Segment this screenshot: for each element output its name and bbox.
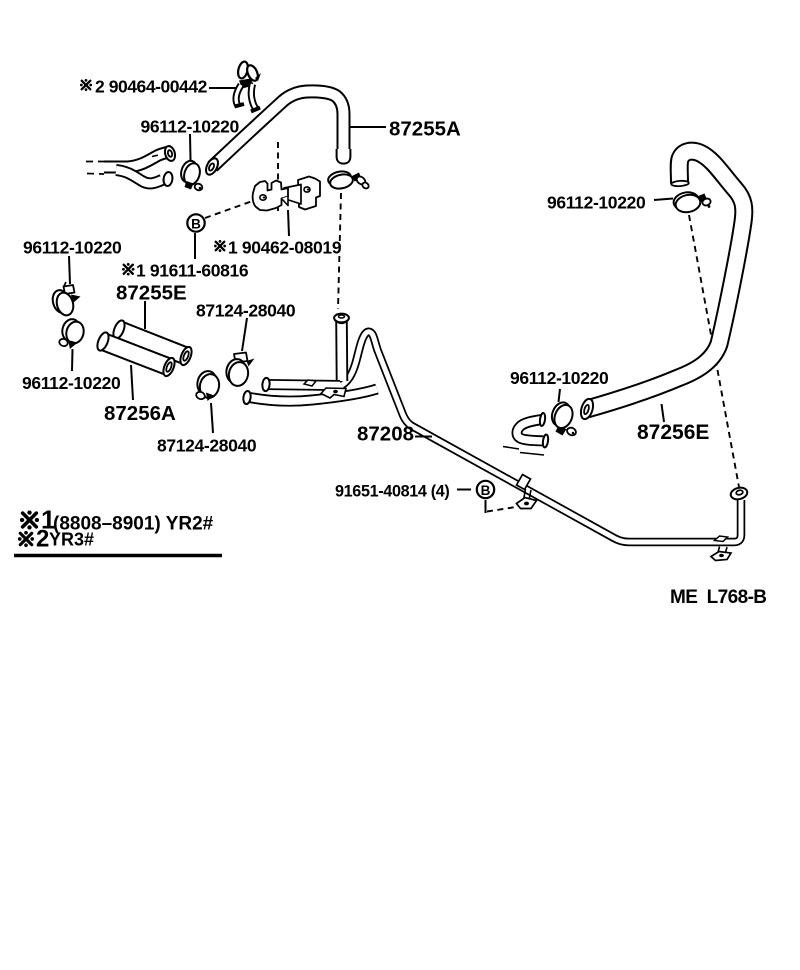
svg-text:2: 2 <box>36 526 49 553</box>
svg-text:96112-10220: 96112-10220 <box>547 193 646 213</box>
svg-text:1 91611-60816: 1 91611-60816 <box>136 261 249 281</box>
svg-text:87124-28040: 87124-28040 <box>196 301 296 321</box>
svg-text:96112-10220: 96112-10220 <box>510 368 609 388</box>
svg-text:87124-28040: 87124-28040 <box>157 436 257 456</box>
svg-text:87256A: 87256A <box>104 402 176 425</box>
svg-text:ME L768-B: ME L768-B <box>670 587 766 608</box>
svg-text:96112-10220: 96112-10220 <box>22 373 121 393</box>
svg-text:2 90464-00442: 2 90464-00442 <box>95 77 208 97</box>
svg-text:B: B <box>481 483 491 498</box>
svg-text:YR3#: YR3# <box>49 530 94 550</box>
svg-text:87256E: 87256E <box>637 421 709 444</box>
svg-text:87255E: 87255E <box>116 282 187 305</box>
svg-text:1 90462-08019: 1 90462-08019 <box>228 238 342 258</box>
svg-text:96112-10220: 96112-10220 <box>23 238 122 258</box>
svg-text:B: B <box>191 217 201 232</box>
svg-text:96112-10220: 96112-10220 <box>141 117 240 137</box>
svg-text:87255A: 87255A <box>389 118 461 141</box>
svg-text:87208: 87208 <box>357 423 414 446</box>
svg-text:91651-40814 (4): 91651-40814 (4) <box>335 483 449 501</box>
